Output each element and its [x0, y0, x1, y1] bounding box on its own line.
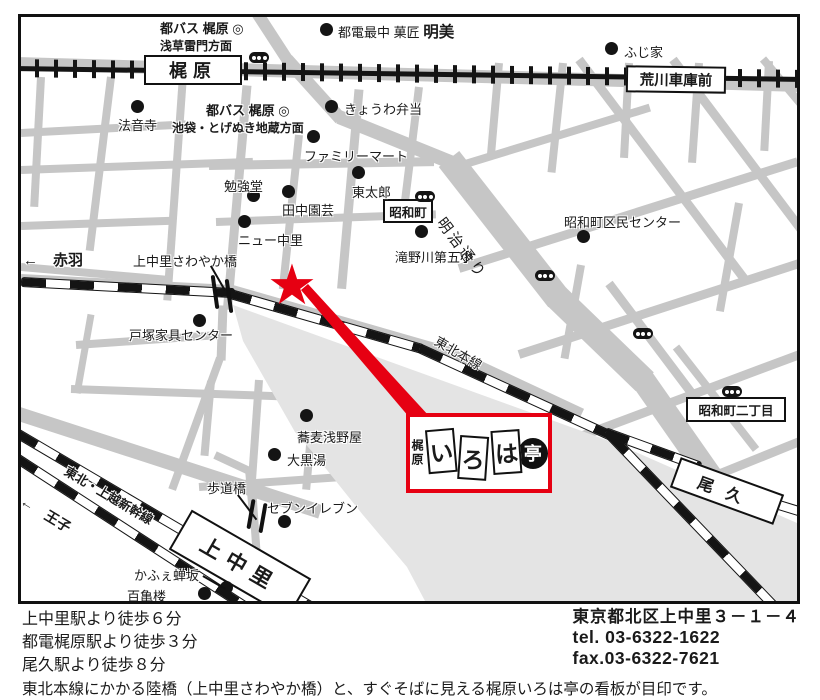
poi-dot: [325, 100, 338, 113]
road-segment: [30, 77, 45, 207]
poi-label-soba-asanoya: 蕎麦浅野屋: [297, 427, 362, 446]
bus-stop-direction: 池袋・とげぬき地蔵方面: [172, 119, 304, 136]
poi-dot: [307, 130, 320, 143]
logo-tei-circle: 亭: [518, 438, 548, 469]
fax-text: fax.03-6322-7621: [573, 648, 801, 669]
poi-dot: [352, 166, 365, 179]
poi-label-tanaka-engei: 田中園芸: [282, 200, 334, 219]
address-text: 東京都北区上中里３－１－４: [573, 603, 801, 627]
bus-stop-icon: ◎: [232, 21, 243, 36]
direction-label-akabane: ← 赤羽: [23, 249, 83, 270]
bridge-label-hodokyo: 歩道橋: [207, 478, 246, 497]
pedestrian-bridge-icon: [258, 503, 267, 533]
poi-dot: [198, 587, 211, 600]
poi-label-emphasis: 明美: [423, 24, 454, 41]
traffic-signal-icon: [633, 328, 653, 339]
poi-dot: [268, 448, 281, 461]
direction-label-oji: ← 王子: [18, 491, 75, 537]
access-line: 尾久駅より徒歩８分: [22, 654, 198, 677]
station-box-kajiwara: 梶原: [144, 55, 242, 85]
map-canvas: ★ 梶原 荒川車庫前 上中里 尾久 昭和町 昭和町二丁目 都バス 梶原 ◎: [18, 14, 800, 604]
traffic-signal-icon: [722, 386, 742, 397]
iroha-tei-logo-box: 梶原 い ろ は 亭: [406, 413, 552, 493]
station-label: 尾久: [695, 469, 760, 512]
area-label: 昭和町二丁目: [698, 400, 773, 419]
area-label: 昭和町: [389, 202, 427, 221]
poi-label-daikokuyu: 大黒湯: [287, 450, 326, 469]
poi-label-fujiya: ふじ家: [624, 42, 663, 61]
poi-dot: [605, 42, 618, 55]
destination-star-icon: ★: [264, 257, 320, 313]
road-segment: [21, 217, 173, 230]
poi-label-kumin-center: 昭和町区民センター: [564, 212, 681, 231]
bus-stop-name: 都バス 梶原: [160, 21, 229, 36]
logo-card-ha: は: [490, 429, 522, 475]
poi-label-benkyodo: 勉強堂: [224, 176, 263, 195]
logo-card-ro: ろ: [457, 435, 489, 481]
logo-region-text: 梶原: [410, 439, 424, 467]
traffic-signal-icon: [249, 52, 269, 63]
poi-label-cafe-semizaka: かふぇ蝉坂: [134, 565, 199, 584]
poi-dot: [415, 225, 428, 238]
poi-label-text: 都電最中 菓匠: [338, 25, 423, 40]
railway-jr-line: [226, 288, 425, 354]
poi-label-kyowa-bento: きょうわ弁当: [344, 99, 422, 118]
bus-stop-kajiwara-asakusa: 都バス 梶原 ◎ 浅草雷門方面: [160, 18, 244, 54]
poi-label-higashitaro: 東太郎: [352, 182, 391, 201]
poi-label-toden-monaka: 都電最中 菓匠 明美: [338, 20, 454, 42]
bridge-label-sawayaka: 上中里さわやか橋: [133, 251, 237, 270]
access-line: 上中里駅より徒歩６分: [22, 608, 198, 631]
poi-dot: [300, 409, 313, 422]
traffic-signal-icon: [415, 191, 435, 202]
access-line: 都電梶原駅より徒歩３分: [22, 631, 198, 654]
poi-dot: [282, 185, 295, 198]
poi-dot: [238, 215, 251, 228]
road-segment: [74, 314, 95, 394]
station-box-arakawa-shako-mae: 荒川車庫前: [626, 65, 726, 93]
area-box-showacho: 昭和町: [383, 199, 433, 223]
poi-label-hyakkiro: 百亀楼: [127, 586, 166, 604]
poi-label-totsuka-kagu: 戸塚家具センター: [129, 325, 233, 344]
poi-label-new-nakazato: ニュー中里: [238, 230, 303, 249]
tel-text: tel. 03-6322-1622: [573, 627, 801, 648]
logo-card-i: い: [425, 428, 458, 474]
station-label: 梶原: [169, 57, 217, 83]
poi-dot: [320, 23, 333, 36]
bus-stop-kajiwara-ikebukuro: 都バス 梶原 ◎ 池袋・とげぬき地蔵方面: [172, 100, 304, 136]
poi-dot: [577, 230, 590, 243]
station-label: 荒川車庫前: [640, 68, 713, 90]
bus-stop-direction: 浅草雷門方面: [160, 37, 244, 54]
poi-dot: [131, 100, 144, 113]
access-map-page: ★ 梶原 荒川車庫前 上中里 尾久 昭和町 昭和町二丁目 都バス 梶原 ◎: [0, 0, 820, 700]
poi-label-hoonji: 法音寺: [118, 115, 157, 134]
poi-label-familymart: ファミリーマート: [304, 146, 408, 165]
bus-stop-icon: ◎: [278, 103, 289, 118]
landmark-note: 東北本線にかかる陸橋（上中里さわやか橋）と、すぐそばに見える梶原いろは亭の看板が…: [22, 677, 717, 699]
access-info: 上中里駅より徒歩６分 都電梶原駅より徒歩３分 尾久駅より徒歩８分: [22, 608, 198, 677]
traffic-signal-icon: [535, 270, 555, 281]
area-box-showacho-2chome: 昭和町二丁目: [686, 397, 786, 422]
poi-label-seven-eleven: セブンイレブン: [267, 498, 358, 517]
bus-stop-name: 都バス 梶原: [206, 103, 275, 118]
contact-info: 東京都北区上中里３－１－４ tel. 03-6322-1622 fax.03-6…: [573, 603, 801, 669]
